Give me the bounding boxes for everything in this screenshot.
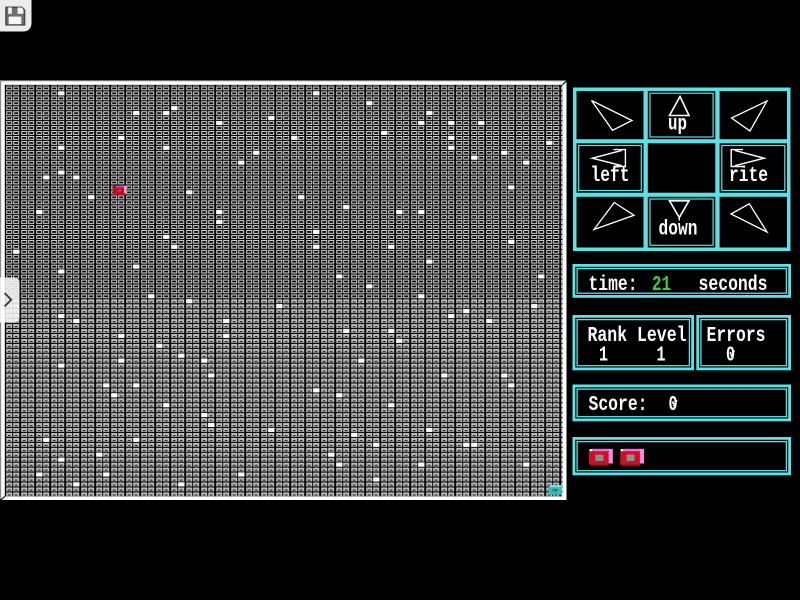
svg-text:1: 1 (599, 345, 608, 368)
svg-text:seconds: seconds (699, 274, 768, 297)
svg-text:21: 21 (652, 274, 671, 297)
svg-text:Errors: Errors (707, 325, 766, 348)
svg-text:time:: time: (589, 274, 638, 297)
svg-text:left: left (591, 165, 630, 188)
svg-text:down: down (659, 219, 698, 242)
svg-text:rite: rite (729, 165, 768, 188)
svg-text:Score:: Score: (589, 394, 648, 417)
svg-text:up: up (668, 114, 687, 137)
svg-text:1: 1 (657, 345, 666, 368)
